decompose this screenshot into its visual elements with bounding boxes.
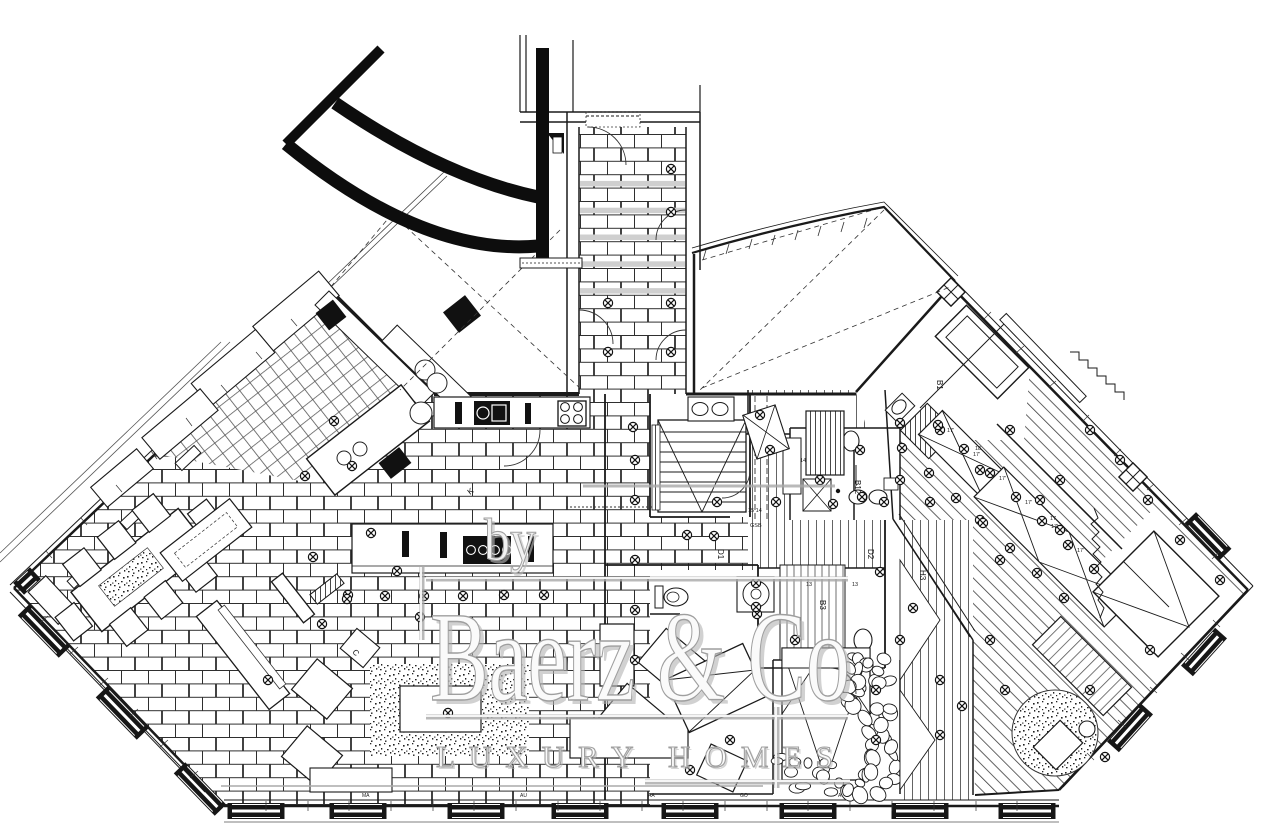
- svg-text:MA: MA: [362, 793, 370, 799]
- svg-text:GO: GO: [740, 793, 748, 799]
- svg-text:17': 17': [1077, 548, 1084, 554]
- svg-text:17': 17': [999, 476, 1006, 482]
- svg-text:15 14: 15 14: [748, 508, 762, 514]
- svg-text:LUXURY HOMES: LUXURY HOMES: [436, 739, 847, 774]
- svg-text:AU: AU: [520, 793, 527, 799]
- svg-text:D2: D2: [866, 549, 875, 560]
- svg-text:B12: B12: [853, 480, 862, 495]
- svg-text:D1: D1: [716, 549, 725, 560]
- svg-text:17: 17: [1050, 516, 1056, 522]
- svg-text:17': 17': [1025, 500, 1032, 506]
- svg-text:AA: AA: [648, 793, 655, 799]
- svg-text:by: by: [484, 507, 536, 573]
- svg-text:GSB: GSB: [750, 523, 762, 529]
- svg-text:H3: H3: [918, 570, 927, 581]
- svg-text:17': 17': [973, 452, 980, 458]
- svg-text:17': 17': [947, 428, 954, 434]
- svg-text:14: 14: [800, 458, 806, 464]
- svg-text:18: 18: [975, 446, 981, 452]
- svg-text:B1: B1: [935, 380, 944, 390]
- svg-text:Baerz & Co: Baerz & Co: [430, 586, 850, 728]
- svg-text:17': 17': [1051, 524, 1058, 530]
- svg-text:13: 13: [852, 582, 858, 588]
